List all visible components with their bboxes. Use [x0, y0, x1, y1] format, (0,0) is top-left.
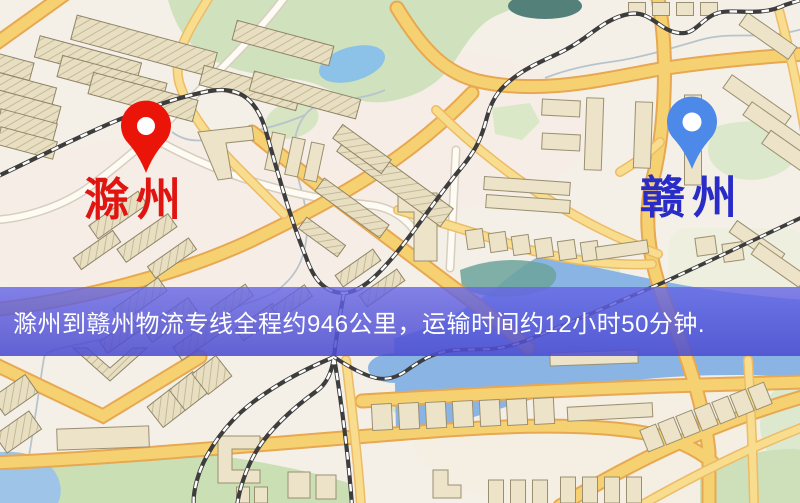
map-image: 滁州 赣州 滁州到赣州物流专线全程约946公里，运输时间约12小时50分钟. [0, 0, 800, 503]
route-info-text: 滁州到赣州物流专线全程约946公里，运输时间约12小时50分钟. [13, 304, 705, 339]
route-info-banner: 滁州到赣州物流专线全程约946公里，运输时间约12小时50分钟. [0, 287, 800, 356]
origin-city-label: 滁州 [84, 178, 188, 223]
destination-city-label: 赣州 [640, 176, 744, 221]
map-canvas [0, 0, 800, 503]
